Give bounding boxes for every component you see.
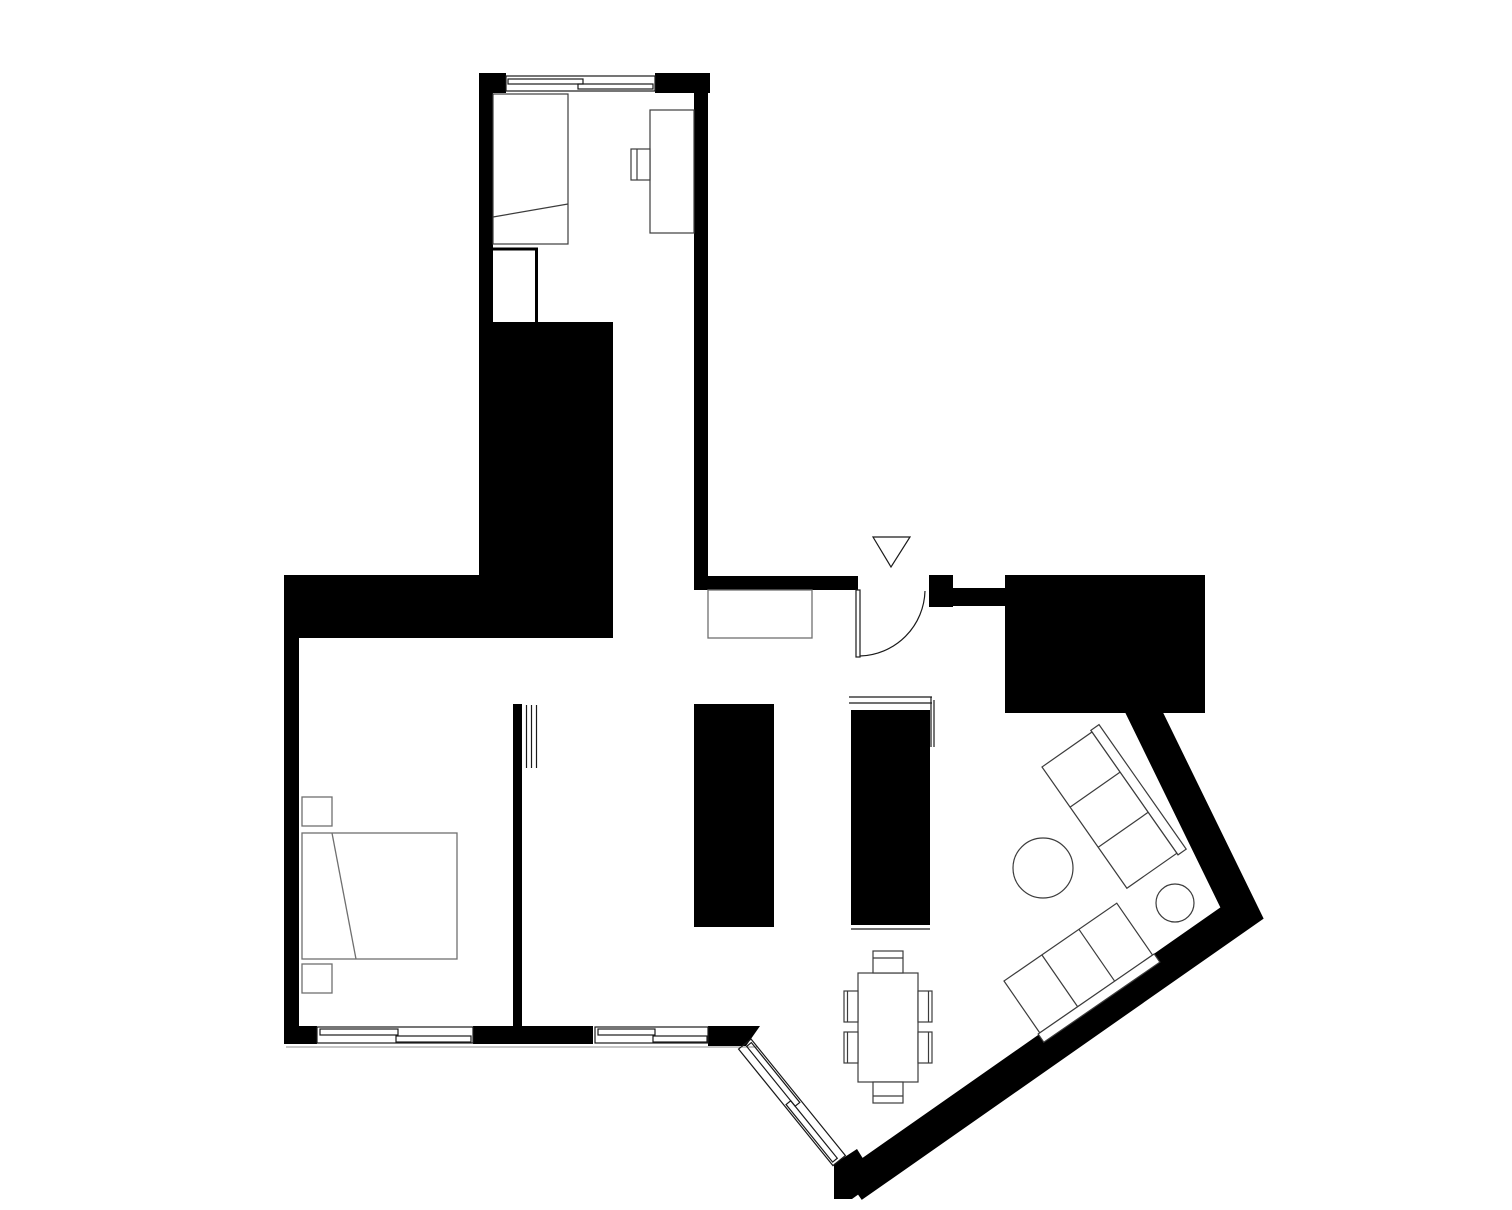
wall-bedroom-bottom-left bbox=[284, 1026, 317, 1044]
chair-outline bbox=[873, 951, 903, 973]
window-sash bbox=[747, 1043, 800, 1107]
wall-door-jamb-block bbox=[929, 575, 953, 607]
side-table-round bbox=[1156, 884, 1194, 922]
wall-bedroom-left bbox=[284, 575, 299, 1043]
wall-top-room-left bbox=[479, 93, 493, 323]
dining-chair-east-1 bbox=[918, 991, 932, 1022]
bed bbox=[302, 833, 457, 959]
chair-outline bbox=[918, 991, 932, 1022]
wall-hall-right bbox=[953, 588, 1005, 606]
window-angled bbox=[739, 1039, 846, 1166]
wall-bedroom-top bbox=[284, 575, 613, 638]
nightstand-top bbox=[302, 797, 332, 826]
window-sash bbox=[653, 1036, 707, 1042]
nightstand-bottom bbox=[302, 964, 332, 993]
wall-bedroom-bottom-pier bbox=[473, 1026, 593, 1044]
wall-hall-top bbox=[694, 576, 858, 590]
dining-table bbox=[858, 973, 918, 1082]
sliding-door-track bbox=[527, 705, 537, 768]
floor-plan-page bbox=[0, 0, 1512, 1210]
kitchen-island-right bbox=[851, 710, 930, 925]
dining-chair-west-1 bbox=[844, 991, 858, 1022]
chair-outline bbox=[631, 149, 650, 180]
dining-chair-north bbox=[873, 951, 903, 973]
wall-top-right-corner bbox=[655, 73, 710, 93]
wall-top-room-right bbox=[694, 93, 708, 590]
chair-outline bbox=[918, 1032, 932, 1063]
dining-chair-south bbox=[873, 1082, 903, 1103]
coffee-table-round bbox=[1013, 838, 1073, 898]
desk bbox=[650, 110, 694, 233]
closet-niche bbox=[492, 249, 538, 322]
floor-plan-svg bbox=[0, 0, 1512, 1210]
entry-door-swing-arc bbox=[860, 591, 925, 656]
window-sash bbox=[508, 79, 583, 84]
service-core-right bbox=[1005, 575, 1205, 713]
chair-outline bbox=[873, 1082, 903, 1103]
wardrobe bbox=[493, 94, 568, 244]
window-bedroom-2 bbox=[595, 1027, 708, 1043]
window-top bbox=[506, 76, 655, 91]
bed-outline bbox=[302, 833, 457, 959]
entry-arrow bbox=[873, 537, 910, 567]
window-sash bbox=[578, 84, 653, 89]
hall-sideboard bbox=[708, 590, 812, 638]
window-bedroom-1 bbox=[317, 1027, 473, 1043]
window-sash bbox=[786, 1101, 837, 1162]
entry-door-leaf bbox=[856, 590, 860, 657]
wall-top-left-corner bbox=[479, 73, 506, 93]
kitchen-island-left bbox=[694, 704, 774, 927]
window-sash bbox=[598, 1029, 655, 1035]
wardrobe-outline bbox=[493, 94, 568, 244]
window-sash bbox=[320, 1029, 398, 1035]
desk-chair bbox=[631, 149, 650, 180]
chair-outline bbox=[844, 991, 858, 1022]
dining-chair-east-2 bbox=[918, 1032, 932, 1063]
window-sash bbox=[396, 1036, 471, 1042]
chair-outline bbox=[844, 1032, 858, 1063]
dining-chair-west-2 bbox=[844, 1032, 858, 1063]
wall-bedroom-divider bbox=[513, 704, 522, 1026]
